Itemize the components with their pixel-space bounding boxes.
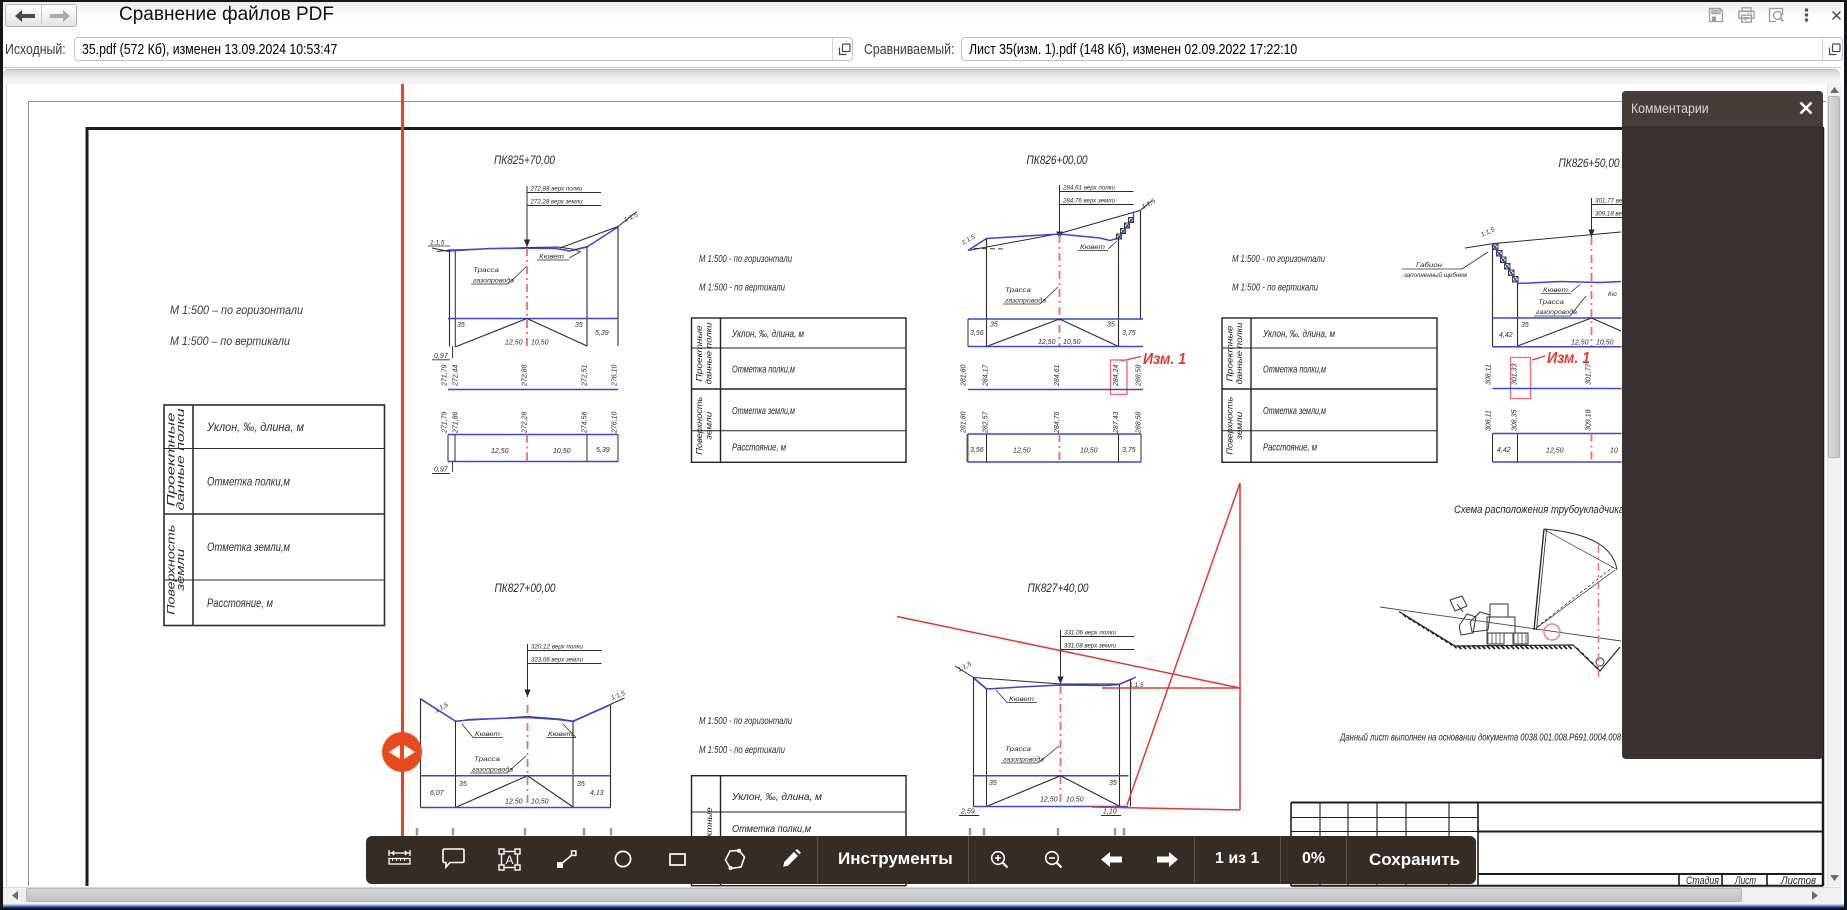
svg-text:A: A xyxy=(505,853,513,867)
